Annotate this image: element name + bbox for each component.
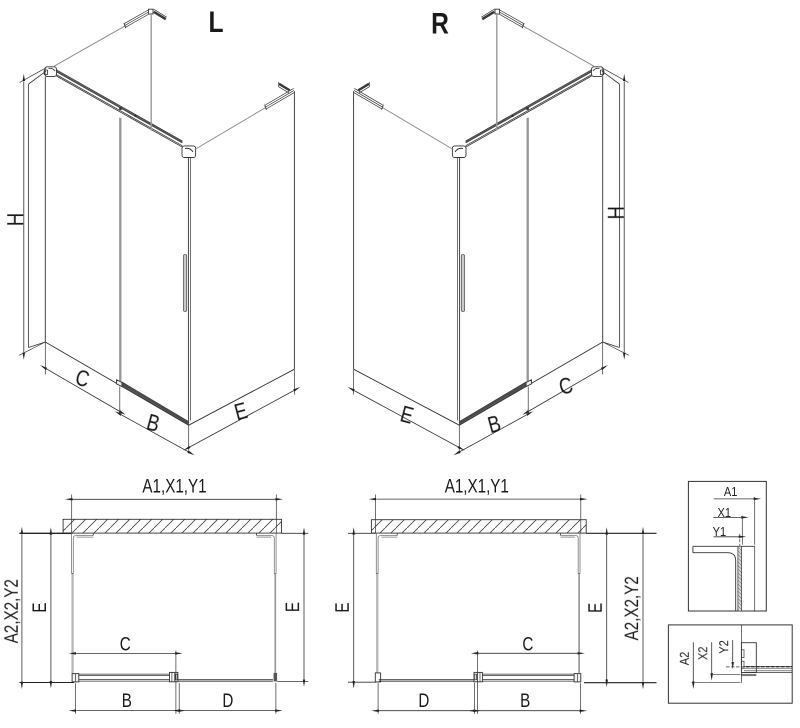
svg-text:C: C (522, 633, 533, 655)
svg-text:E: E (28, 602, 50, 612)
svg-text:B: B (520, 690, 530, 712)
svg-text:L: L (208, 5, 223, 39)
svg-text:H: H (3, 213, 28, 226)
svg-text:B: B (122, 689, 132, 711)
svg-text:Y2: Y2 (716, 640, 731, 654)
svg-text:A2,X2,Y2: A2,X2,Y2 (620, 576, 642, 640)
svg-text:D: D (418, 690, 429, 712)
svg-text:D: D (222, 689, 233, 711)
svg-text:A1,X1,Y1: A1,X1,Y1 (445, 475, 509, 497)
svg-text:A1: A1 (724, 484, 738, 499)
svg-text:A1,X1,Y1: A1,X1,Y1 (142, 475, 206, 497)
svg-text:A2: A2 (677, 651, 692, 665)
svg-text:R: R (431, 6, 449, 40)
svg-text:X2: X2 (695, 646, 710, 660)
svg-text:E: E (331, 602, 353, 612)
svg-text:A2,X2,Y2: A2,X2,Y2 (0, 579, 22, 643)
svg-text:H: H (604, 206, 629, 219)
svg-text:E: E (584, 603, 606, 613)
svg-text:E: E (281, 602, 303, 612)
svg-text:C: C (120, 633, 131, 655)
